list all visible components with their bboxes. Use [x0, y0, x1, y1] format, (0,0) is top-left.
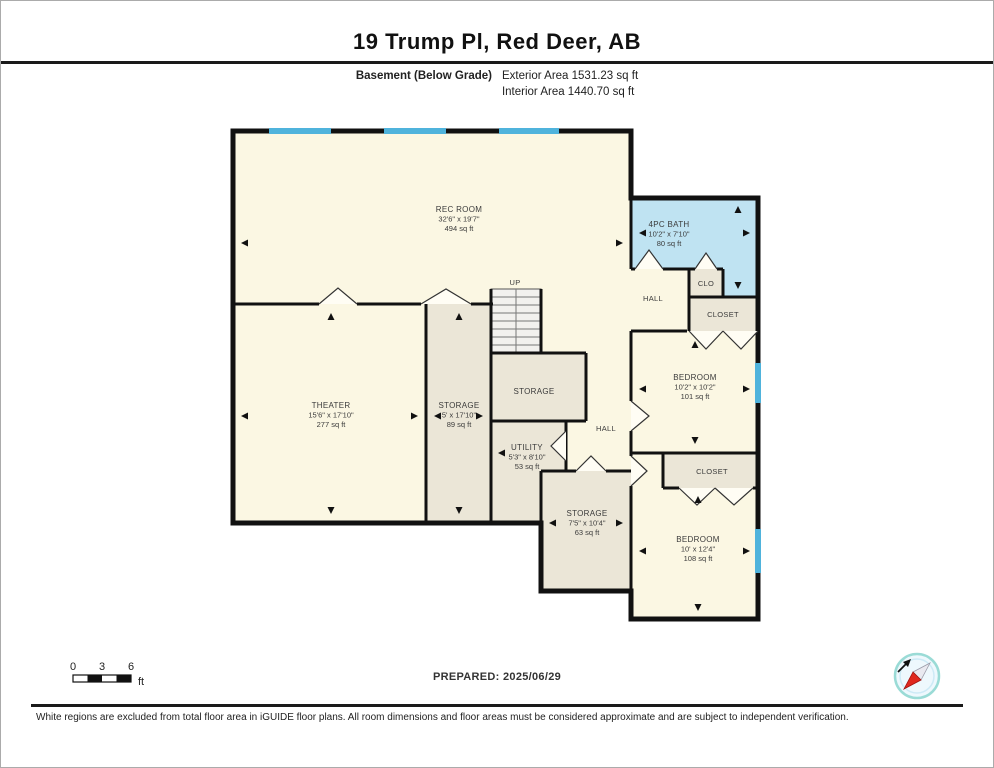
theater-dims: 15'6" x 17'10" — [308, 411, 354, 420]
hall-mid-label: HALL — [596, 424, 616, 433]
theater-area: 277 sq ft — [317, 420, 347, 429]
closet-mid-label: CLOSET — [696, 467, 728, 476]
bath-area: 80 sq ft — [657, 239, 683, 248]
storage-bottom-dims: 7'5" x 10'4" — [569, 519, 606, 528]
stairs-up-label: UP — [509, 278, 520, 287]
bedroom-lower-dims: 10' x 12'4" — [681, 545, 716, 554]
storage-tall-area: 89 sq ft — [447, 420, 473, 429]
utility-area: 53 sq ft — [515, 462, 541, 471]
theater-name: THEATER — [312, 401, 351, 410]
rec-room-area: 494 sq ft — [445, 224, 475, 233]
prepared-date: PREPARED: 2025/06/29 — [1, 671, 993, 683]
storage-bottom-name: STORAGE — [566, 509, 607, 518]
rec-room-dims: 32'6" x 19'7" — [438, 215, 479, 224]
stairs — [491, 289, 541, 353]
utility-dims: 5'3" x 8'10" — [509, 453, 546, 462]
storage-bottom-area: 63 sq ft — [575, 528, 601, 537]
bedroom-upper-name: BEDROOM — [673, 373, 716, 382]
rec-room-name: REC ROOM — [436, 205, 482, 214]
disclaimer-text: White regions are excluded from total fl… — [36, 712, 973, 723]
bath-name: 4PC BATH — [649, 220, 690, 229]
utility-name: UTILITY — [511, 443, 543, 452]
storage-tall-dims: 5' x 17'10" — [442, 411, 477, 420]
storage-tall-name: STORAGE — [438, 401, 479, 410]
storage-mid-name: STORAGE — [513, 387, 554, 396]
clo-label: CLO — [698, 279, 714, 288]
bedroom-upper-dims: 10'2" x 10'2" — [674, 383, 715, 392]
floorplan-drawing: REC ROOM 32'6" x 19'7" 494 sq ft THEATER… — [1, 1, 993, 767]
closet-top-label: CLOSET — [707, 310, 739, 319]
bedroom-lower-area: 108 sq ft — [684, 554, 714, 563]
hall-top-label: HALL — [643, 294, 663, 303]
floorplan-page: 19 Trump Pl, Red Deer, AB Basement (Belo… — [0, 0, 994, 768]
bedroom-upper-area: 101 sq ft — [681, 392, 711, 401]
footer-divider — [31, 704, 963, 707]
bedroom-lower-name: BEDROOM — [676, 535, 719, 544]
bath-dims: 10'2" x 7'10" — [648, 230, 689, 239]
